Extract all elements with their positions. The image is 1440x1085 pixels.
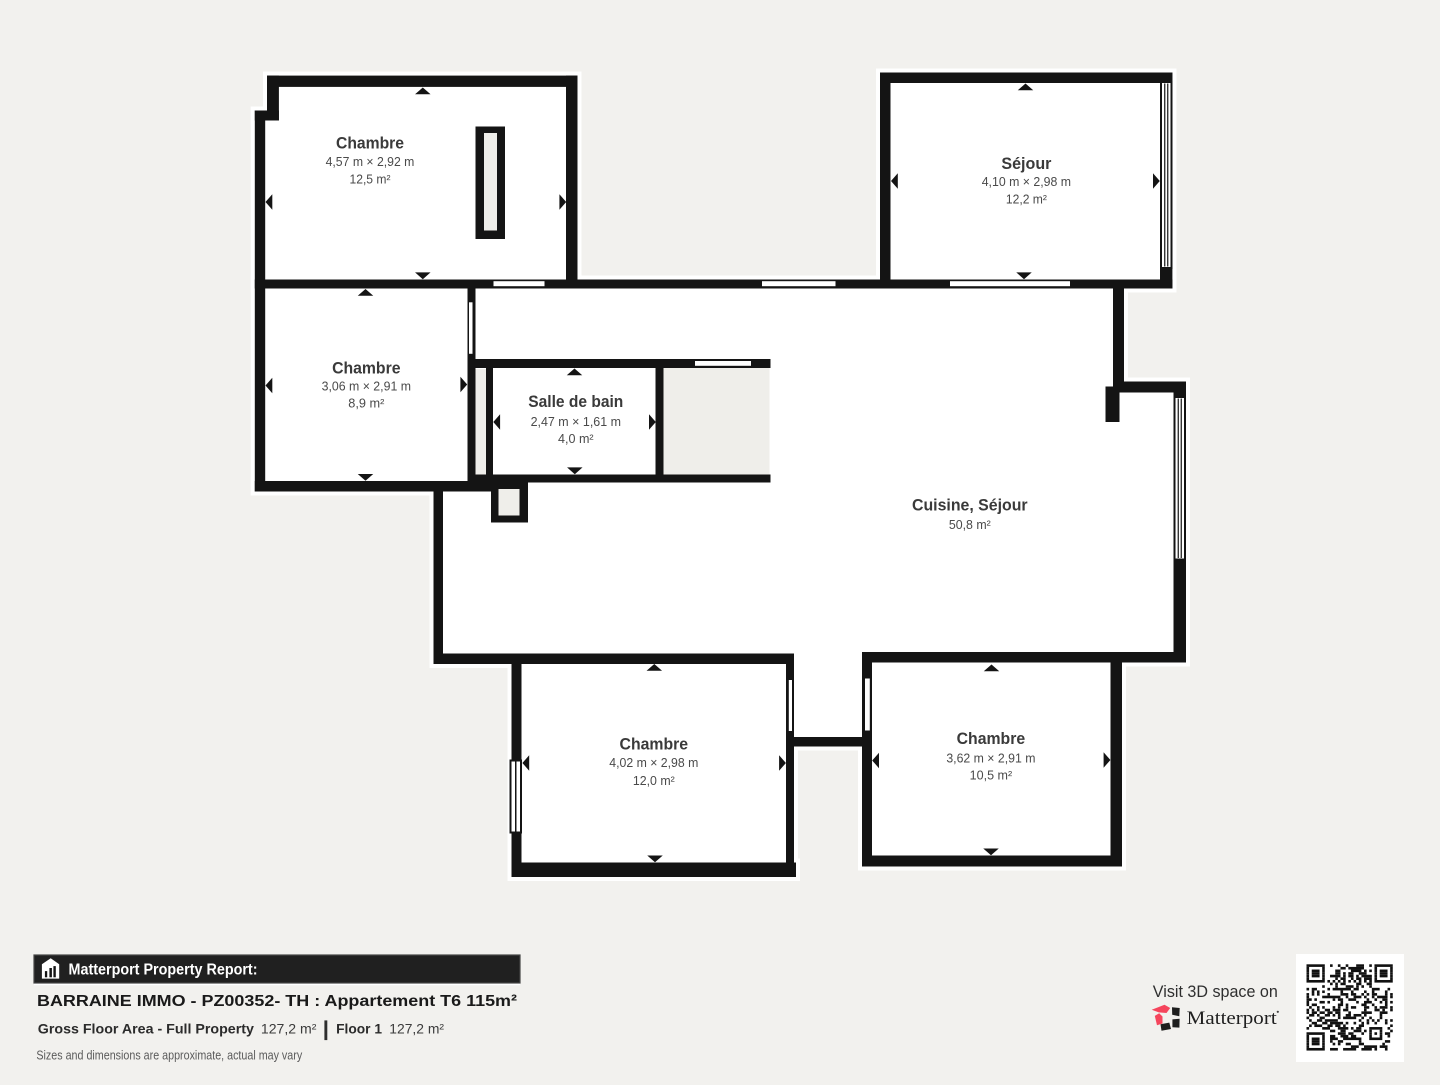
svg-text:Sizes and dimensions are appro: Sizes and dimensions are approximate, ac… xyxy=(36,1047,302,1062)
svg-text:Gross Floor Area - Full Proper: Gross Floor Area - Full Property xyxy=(38,1020,254,1036)
svg-text:10,5 m²: 10,5 m² xyxy=(970,768,1013,783)
svg-text:4,02 m × 2,98 m: 4,02 m × 2,98 m xyxy=(609,755,698,770)
svg-text:3,62 m × 2,91 m: 3,62 m × 2,91 m xyxy=(946,750,1035,765)
svg-text:BARRAINE IMMO - PZ00352- TH :: BARRAINE IMMO - PZ00352- TH : Appartemen… xyxy=(37,993,517,1010)
svg-text:Chambre: Chambre xyxy=(336,133,404,152)
svg-text:12,5 m²: 12,5 m² xyxy=(350,172,392,187)
svg-text:Visit 3D space on: Visit 3D space on xyxy=(1153,983,1278,1001)
svg-text:3,06 m × 2,91 m: 3,06 m × 2,91 m xyxy=(322,379,411,394)
svg-text:4,0 m²: 4,0 m² xyxy=(558,431,594,446)
svg-text:Matterport: Matterport xyxy=(1187,1009,1278,1029)
svg-text:2,47 m × 1,61 m: 2,47 m × 1,61 m xyxy=(531,414,621,429)
svg-text:Salle de bain: Salle de bain xyxy=(528,392,623,411)
svg-text:Séjour: Séjour xyxy=(1001,154,1051,173)
svg-text:Matterport Property Report:: Matterport Property Report: xyxy=(69,961,258,978)
svg-text:50,8 m²: 50,8 m² xyxy=(949,517,992,532)
svg-text:Floor 1: Floor 1 xyxy=(336,1020,382,1036)
svg-text:Cuisine, Séjour: Cuisine, Séjour xyxy=(912,495,1028,514)
svg-text:127,2 m²: 127,2 m² xyxy=(261,1020,317,1036)
svg-text:127,2 m²: 127,2 m² xyxy=(389,1020,444,1036)
svg-text:4,57 m × 2,92 m: 4,57 m × 2,92 m xyxy=(326,154,415,169)
svg-text:Chambre: Chambre xyxy=(332,358,400,377)
svg-text:8,9 m²: 8,9 m² xyxy=(348,396,385,411)
svg-text:4,10 m × 2,98 m: 4,10 m × 2,98 m xyxy=(982,174,1071,189)
svg-text:Chambre: Chambre xyxy=(620,735,689,754)
svg-text:12,2 m²: 12,2 m² xyxy=(1006,192,1048,207)
svg-text:12,0 m²: 12,0 m² xyxy=(633,773,676,788)
svg-text:Chambre: Chambre xyxy=(957,729,1026,748)
